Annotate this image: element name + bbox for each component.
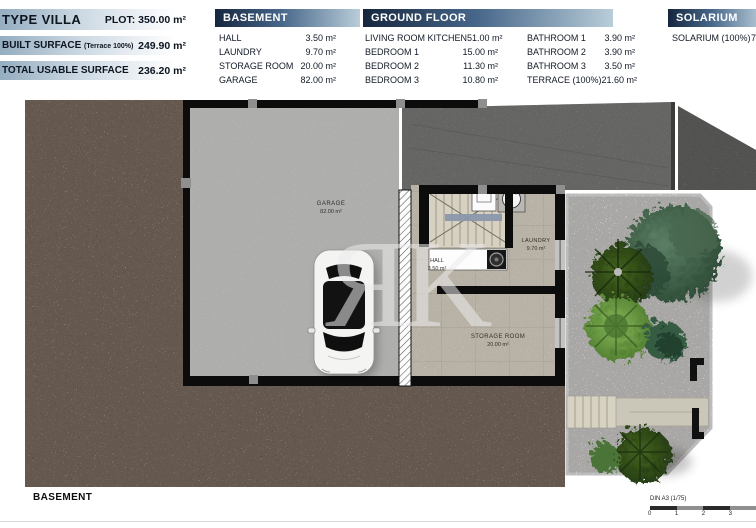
table-row: HALL3.50 m² xyxy=(215,31,336,45)
palm-tree-icon xyxy=(612,424,668,480)
basement-area-table: BASEMENT HALL3.50 m² LAUNDRY9.70 m² STOR… xyxy=(215,9,360,87)
garden-area xyxy=(567,195,752,480)
solarium-area-table: SOLARIUM SOLARIUM (100%)7 xyxy=(668,9,756,45)
driveway-ramp xyxy=(402,102,756,190)
built-surface-bar: BUILT SURFACE (Terrace 100%) 249.90 m² xyxy=(0,36,192,55)
storage-room-area: 20.00 m² xyxy=(487,342,509,348)
solarium-table-header: SOLARIUM xyxy=(668,9,756,27)
table-row: BEDROOM 211.30 m² xyxy=(363,59,498,73)
ground-floor-area-table: GROUND FLOOR LIVING ROOM KITCHEN51.00 m²… xyxy=(363,9,638,87)
basement-table-header: BASEMENT xyxy=(215,9,360,27)
fern-plant-icon xyxy=(584,294,648,358)
basement-floor-plan: GARAGE 82.00 m² HALL 3.50 m² LAUNDRY 9.7… xyxy=(0,90,756,490)
table-row: BATHROOM 23.90 m² xyxy=(523,45,635,59)
table-row: SOLARIUM (100%)7 xyxy=(668,31,756,45)
garage-label: GARAGE xyxy=(317,201,346,207)
table-row: BEDROOM 310.80 m² xyxy=(363,73,498,87)
ground-floor-table-header: GROUND FLOOR xyxy=(363,9,613,27)
total-usable-label: TOTAL USABLE SURFACE xyxy=(2,65,129,76)
table-row: BEDROOM 115.00 m² xyxy=(363,45,498,59)
table-row: BATHROOM 33.50 m² xyxy=(523,59,635,73)
table-row: TERRACE (100%)21.60 m² xyxy=(523,73,635,87)
scale-ticks: 0 1 2 3 xyxy=(648,511,732,517)
round-bush-icon xyxy=(642,318,682,358)
built-surface-label: BUILT SURFACE xyxy=(2,40,81,51)
watermark-logo: ЯK xyxy=(325,216,491,354)
footer-divider xyxy=(0,521,756,522)
laundry-label: LAUNDRY xyxy=(522,238,551,244)
washing-machine-icon xyxy=(487,250,506,269)
total-usable-value: 236.20 m² xyxy=(138,65,186,77)
garage-area: 82.00 m² xyxy=(320,209,342,215)
table-row: LIVING ROOM KITCHEN51.00 m² xyxy=(363,31,498,45)
laundry-area: 9.70 m² xyxy=(527,246,546,252)
table-row: STORAGE ROOM20.00 m² xyxy=(215,59,336,73)
plan-type-title: TYPE VILLA xyxy=(2,12,81,27)
table-row: GARAGE82.00 m² xyxy=(215,73,336,87)
scale-label: DIN A3 (1/75) xyxy=(650,496,686,502)
plot-area-value: PLOT: 350.00 m² xyxy=(105,14,186,26)
plan-title: BASEMENT xyxy=(33,492,92,503)
floor-plan-sheet: TYPE VILLA PLOT: 350.00 m² BUILT SURFACE… xyxy=(0,0,756,528)
built-surface-value: 249.90 m² xyxy=(138,40,186,52)
table-row: LAUNDRY9.70 m² xyxy=(215,45,336,59)
scale-bar xyxy=(650,506,756,510)
exterior-stairs-icon xyxy=(567,396,616,428)
small-bush-icon xyxy=(586,439,616,469)
built-surface-note: (Terrace 100%) xyxy=(84,43,133,50)
total-usable-bar: TOTAL USABLE SURFACE 236.20 m² xyxy=(0,61,192,80)
title-bar: TYPE VILLA PLOT: 350.00 m² xyxy=(0,9,192,30)
table-row: BATHROOM 13.90 m² xyxy=(523,31,635,45)
